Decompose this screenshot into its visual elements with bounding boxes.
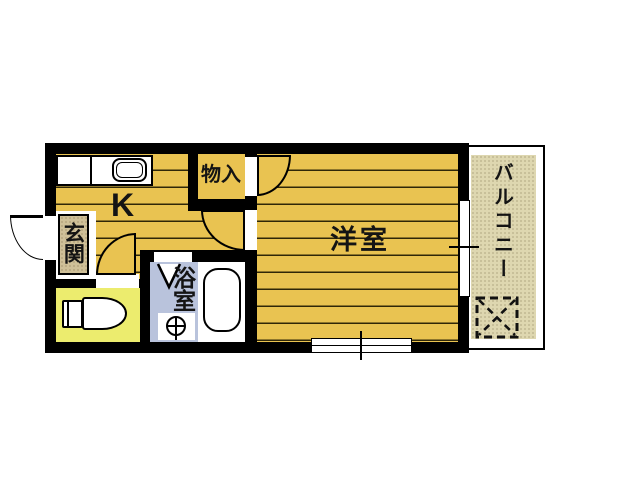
wall-bath-left — [140, 250, 150, 342]
drain-cross-vertical — [175, 318, 177, 340]
western-room-label: 洋室 — [330, 227, 390, 255]
closet-door-opening — [245, 157, 257, 196]
closet-label: 物入 — [197, 165, 245, 185]
toilet-tank — [62, 300, 83, 328]
sink-inner-rim — [116, 162, 143, 178]
window-balcony-tick — [449, 246, 479, 248]
floor-plan: バルコニー 玄関 — [0, 0, 640, 480]
entrance-mat: 玄関 — [58, 214, 89, 275]
kitchen-label: K — [111, 189, 134, 222]
kitchen-counter — [56, 155, 153, 186]
window-balcony — [459, 200, 470, 297]
entrance-door-opening — [45, 216, 56, 260]
entrance-door-swing — [10, 215, 43, 260]
kitchen-western-door-opening — [245, 210, 257, 250]
washing-machine-pan-icon — [474, 295, 520, 340]
window-south-tick — [360, 331, 362, 360]
bath-door-opening — [154, 252, 192, 262]
bathtub — [203, 268, 241, 332]
drain-cross-horizontal — [168, 325, 184, 327]
entrance-label: 玄関 — [62, 222, 83, 264]
toilet-door-opening — [96, 274, 139, 288]
toilet-tank-line — [67, 302, 69, 326]
kitchen-sink — [112, 158, 147, 182]
counter-divider — [90, 157, 92, 184]
